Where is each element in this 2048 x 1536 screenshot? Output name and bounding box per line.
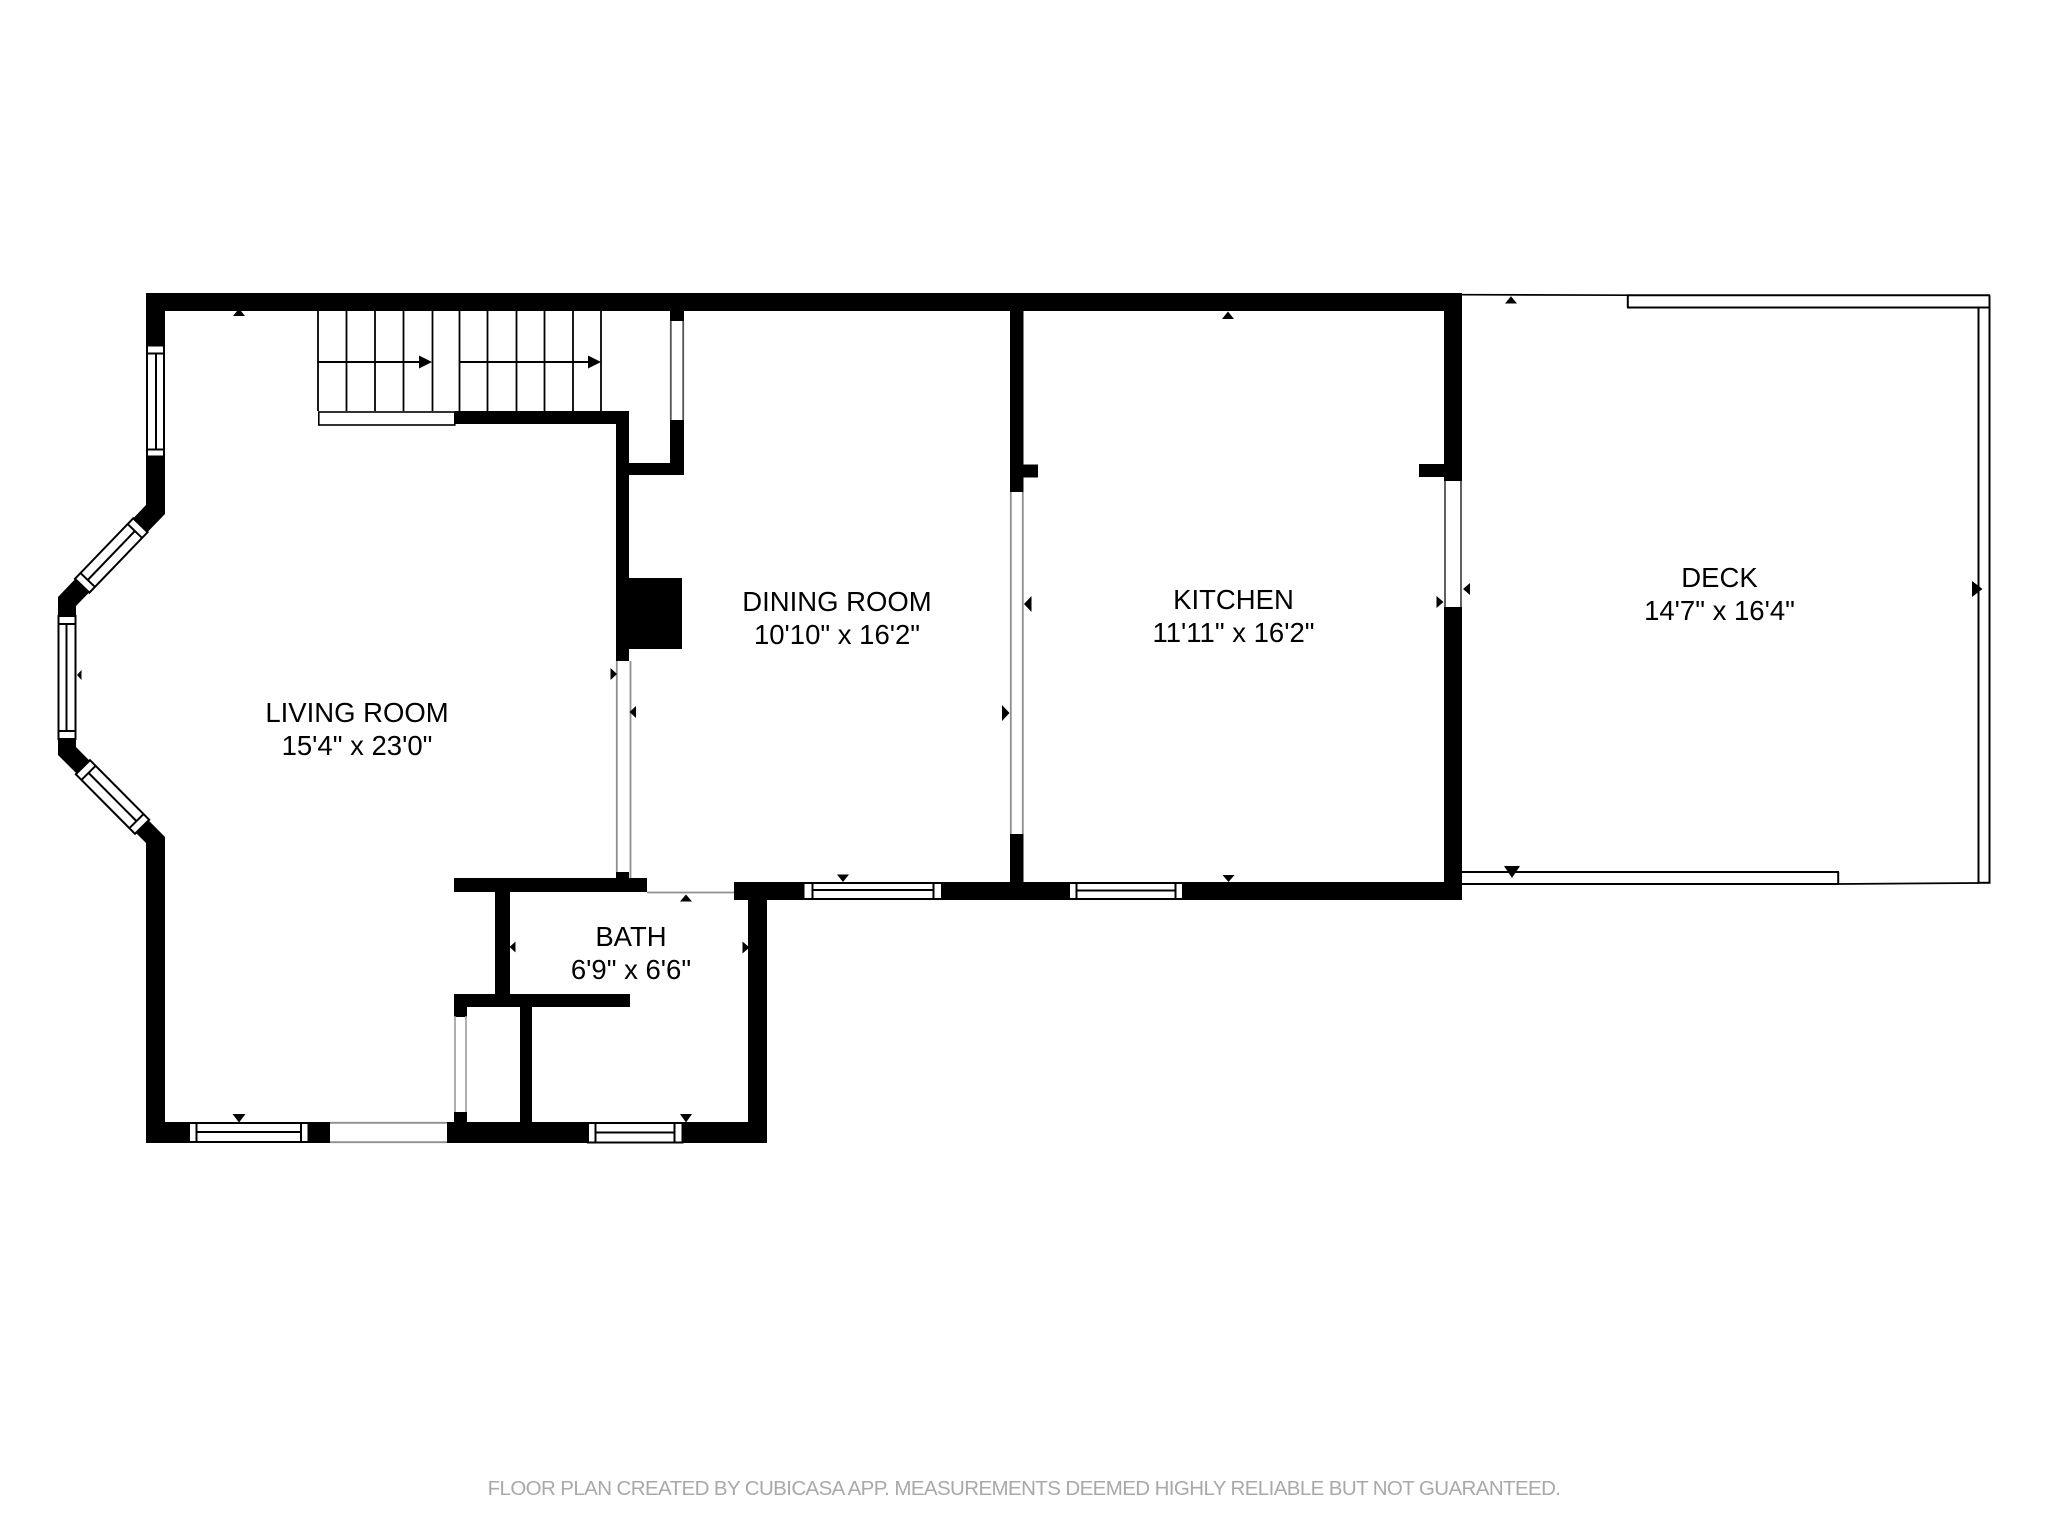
svg-text:BATH: BATH [595,921,666,952]
svg-text:11'11" x 16'2": 11'11" x 16'2" [1152,617,1314,648]
svg-text:14'7" x 16'4": 14'7" x 16'4" [1644,595,1795,626]
svg-text:FLOOR PLAN CREATED BY CUBICASA: FLOOR PLAN CREATED BY CUBICASA APP. MEAS… [488,1477,1561,1500]
svg-text:15'4" x 23'0": 15'4" x 23'0" [282,730,433,761]
svg-text:LIVING ROOM: LIVING ROOM [265,697,448,728]
svg-text:10'10" x 16'2": 10'10" x 16'2" [754,619,920,650]
svg-text:DECK: DECK [1681,562,1758,593]
svg-text:6'9" x 6'6": 6'9" x 6'6" [571,954,691,985]
svg-text:DINING ROOM: DINING ROOM [742,586,931,617]
svg-text:KITCHEN: KITCHEN [1173,584,1294,615]
